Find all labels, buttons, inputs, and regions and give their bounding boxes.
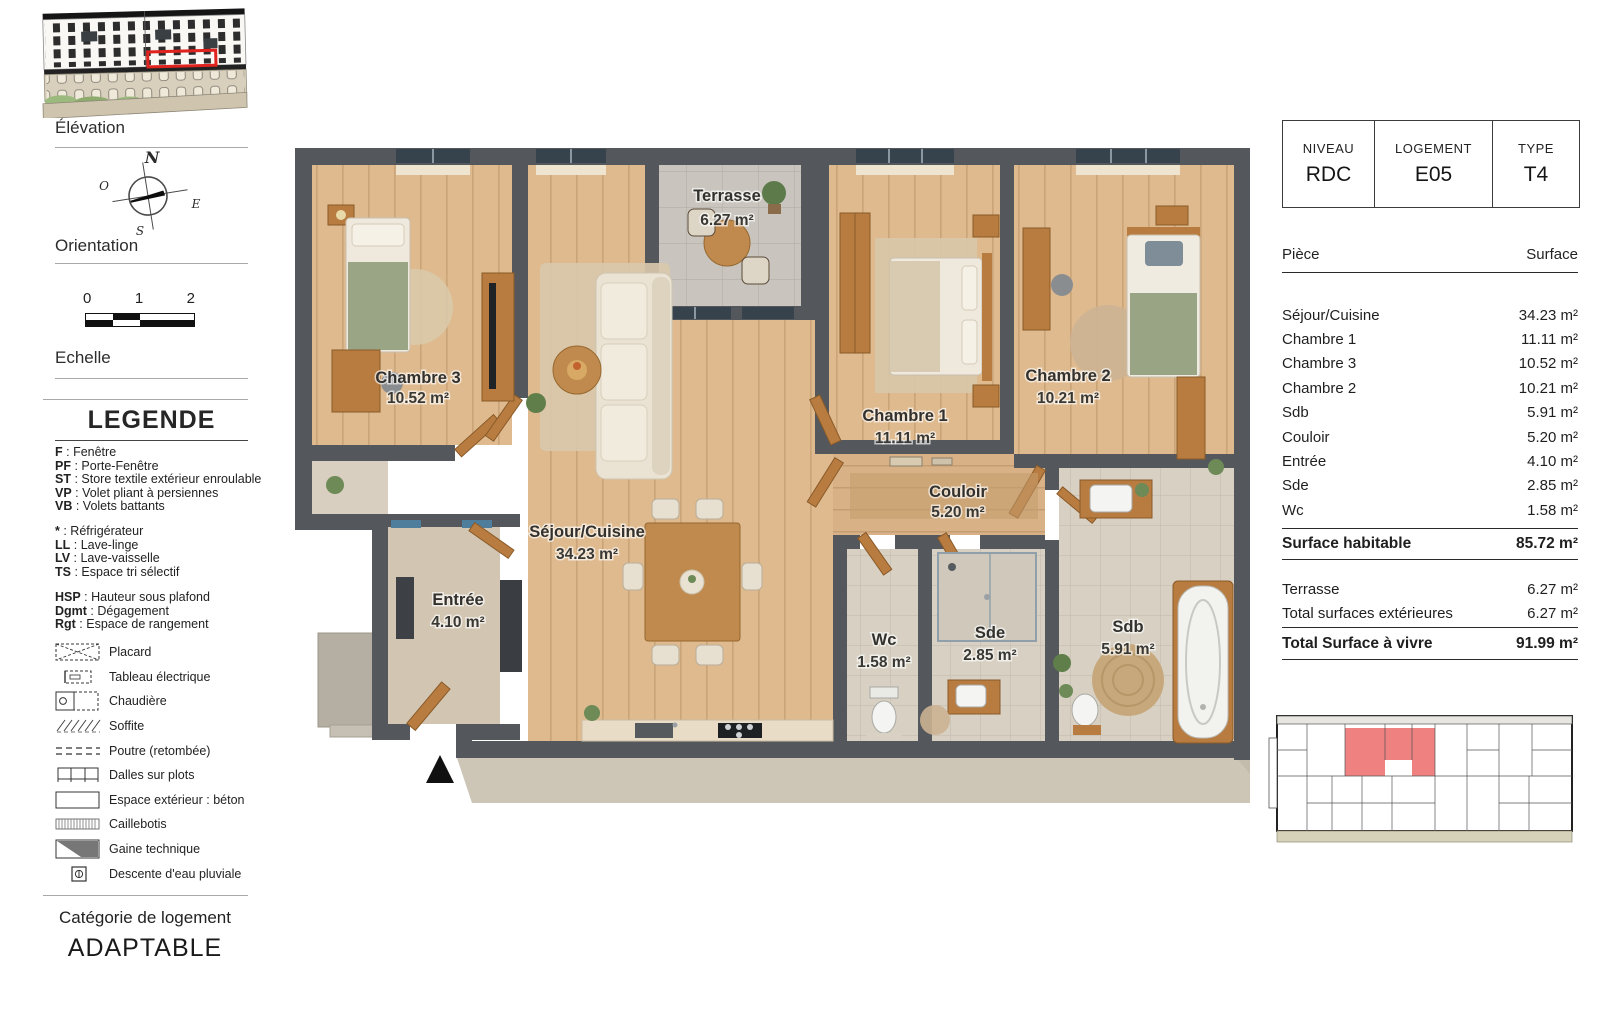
key-plan — [1267, 698, 1582, 848]
chaudiere-icon — [55, 690, 103, 712]
label-wc-name: Wc — [872, 631, 897, 649]
floor-plan: Chambre 3 10.52 m² Terrasse 6.27 m² Séjo… — [290, 135, 1250, 845]
label-couloir-area: 5.20 m² — [931, 504, 984, 521]
col-surface: Surface — [1526, 246, 1578, 263]
label-wc-area: 1.58 m² — [857, 654, 910, 671]
label-sde-area: 2.85 m² — [963, 647, 1016, 664]
label-chambre2-area: 10.21 m² — [1037, 390, 1099, 407]
table-row: Terrasse6.27 m² — [1282, 577, 1578, 601]
divider — [43, 895, 248, 896]
exterior-rows: Terrasse6.27 m² Total surfaces extérieur… — [1282, 577, 1578, 626]
descente-eau-icon — [55, 865, 103, 883]
espace-exterieur-icon — [55, 790, 103, 810]
label-sejour-name: Séjour/Cuisine — [529, 523, 645, 541]
table-row: Séjour/Cuisine34.23 m² — [1282, 303, 1578, 327]
compass-o: O — [99, 179, 109, 193]
label-chambre1-area: 11.11 m² — [875, 430, 935, 447]
legend-row-espace-ext: Espace extérieur : béton — [55, 788, 245, 813]
entrance-marker-triangle — [426, 755, 454, 783]
scale-bar — [85, 313, 195, 327]
legend-row-placard: Placard — [55, 640, 245, 665]
col-piece: Pièce — [1282, 246, 1320, 263]
surface-table-header: Pièce Surface — [1282, 246, 1578, 273]
lot-label: LOGEMENT — [1395, 141, 1472, 156]
level-value: RDC — [1306, 163, 1352, 187]
label-sdb-area: 5.91 m² — [1101, 641, 1154, 658]
type-label: TYPE — [1518, 141, 1554, 156]
window-sejour — [536, 149, 606, 175]
label-couloir-name: Couloir — [929, 483, 987, 501]
wall-front-face — [456, 755, 1250, 803]
divider — [55, 147, 248, 148]
porte-fenetre-terrasse — [659, 307, 794, 319]
label-entree-name: Entrée — [432, 591, 483, 609]
divider — [43, 399, 248, 400]
compass-e: E — [191, 197, 201, 211]
label-chambre3-area: 10.52 m² — [387, 390, 449, 407]
type-value: T4 — [1524, 163, 1549, 187]
label-chambre2-name: Chambre 2 — [1025, 367, 1110, 385]
placard-icon — [55, 642, 103, 662]
tableau-electrique-icon — [55, 667, 103, 687]
table-row: Chambre 210.21 m² — [1282, 376, 1578, 400]
table-row: Entrée4.10 m² — [1282, 449, 1578, 473]
dalles-icon — [55, 765, 103, 785]
table-row: Couloir5.20 m² — [1282, 425, 1578, 449]
legend-row-poutre: Poutre (retombée) — [55, 738, 245, 763]
surface-habitable-row: Surface habitable85.72 m² — [1282, 528, 1578, 560]
legend-symbols: Placard Tableau électrique Chaudière Sof… — [55, 640, 245, 886]
label-terrasse-name: Terrasse — [693, 187, 761, 205]
caillebotis-icon — [55, 815, 103, 833]
table-row: Wc1.58 m² — [1282, 498, 1578, 522]
legend-abbr-group-3: HSP : Hauteur sous plafond Dgmt : Dégage… — [55, 591, 210, 632]
table-row: Sde2.85 m² — [1282, 474, 1578, 498]
poutre-icon — [55, 744, 103, 758]
orientation-label: Orientation — [55, 236, 138, 256]
level-label: NIVEAU — [1303, 141, 1354, 156]
legend-row-gaine: Gaine technique — [55, 837, 245, 862]
window-chambre1 — [856, 149, 954, 175]
legend-row-chaudiere: Chaudière — [55, 689, 245, 714]
legend-row-dalles: Dalles sur plots — [55, 763, 245, 788]
table-row: Total surfaces extérieures6.27 m² — [1282, 601, 1578, 625]
unit-info-table: NIVEAU RDC LOGEMENT E05 TYPE T4 — [1282, 120, 1580, 208]
lot-value: E05 — [1415, 163, 1452, 187]
surface-rows: Séjour/Cuisine34.23 m² Chambre 111.11 m²… — [1282, 303, 1578, 523]
legend-title: LEGENDE — [55, 406, 248, 441]
compass-n: N — [144, 150, 161, 167]
elevation-drawing — [36, 6, 258, 118]
elevation-label: Élévation — [55, 118, 125, 138]
window-chambre2 — [1076, 149, 1180, 175]
divider — [55, 378, 248, 379]
legend-abbr-group-1: F : Fenêtre PF : Porte-Fenêtre ST : Stor… — [55, 446, 261, 514]
divider — [55, 263, 248, 264]
unit-lot-cell: LOGEMENT E05 — [1375, 121, 1493, 207]
unit-level-cell: NIVEAU RDC — [1283, 121, 1375, 207]
scale-0: 0 — [83, 290, 91, 307]
label-terrasse-area: 6.27 m² — [700, 212, 753, 229]
legend-row-tableau: Tableau électrique — [55, 665, 245, 690]
surface-total-row: Total Surface à vivre91.99 m² — [1282, 627, 1578, 660]
scale-2: 2 — [187, 290, 195, 307]
category-value: ADAPTABLE — [30, 934, 260, 963]
table-row: Sdb5.91 m² — [1282, 401, 1578, 425]
label-entree-area: 4.10 m² — [431, 614, 484, 631]
table-row: Chambre 310.52 m² — [1282, 352, 1578, 376]
label-chambre3-name: Chambre 3 — [375, 369, 460, 387]
scale-label: Echelle — [55, 348, 111, 368]
legend-row-caillebotis: Caillebotis — [55, 812, 245, 837]
legend-abbr-group-2: * : Réfrigérateur LL : Lave-linge LV : L… — [55, 525, 179, 579]
scale-numbers: 0 1 2 — [83, 290, 195, 307]
label-sejour-area: 34.23 m² — [556, 546, 618, 563]
soffite-icon — [55, 717, 103, 735]
compass-rose: N O E S — [92, 150, 208, 238]
label-sde-name: Sde — [975, 624, 1005, 642]
category-label: Catégorie de logement — [30, 908, 260, 928]
table-row: Chambre 111.11 m² — [1282, 327, 1578, 351]
label-chambre1-name: Chambre 1 — [862, 407, 947, 425]
gaine-technique-icon — [55, 838, 103, 860]
label-sdb-name: Sdb — [1112, 618, 1143, 636]
legend-row-descente: Descente d'eau pluviale — [55, 861, 245, 886]
scale-1: 1 — [135, 290, 143, 307]
window-chambre3 — [396, 149, 470, 175]
legend-row-soffite: Soffite — [55, 714, 245, 739]
closet-blue-left — [391, 520, 421, 528]
floor-closet — [312, 453, 388, 514]
unit-type-cell: TYPE T4 — [1493, 121, 1579, 207]
